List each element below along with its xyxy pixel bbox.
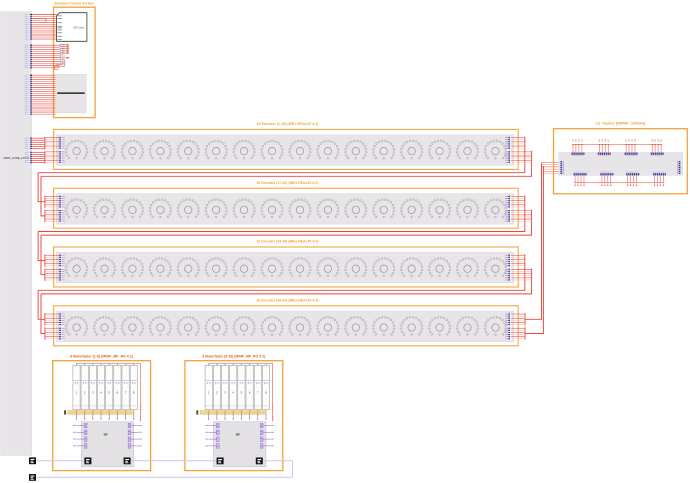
svg-text:8 Motorfader (9-16) (MIMF_MF_R: 8 Motorfader (9-16) (MIMF_MF_RG 4:2) bbox=[202, 354, 265, 358]
svg-text:Standard Control Surface: Standard Control Surface bbox=[54, 2, 94, 6]
svg-text:16 Encoder (33-48) (MB-LREAx25: 16 Encoder (33-48) (MB-LREAx25 4:3) bbox=[257, 240, 319, 244]
svg-text:MF: MF bbox=[236, 433, 240, 437]
svg-text:16 Encoder (49-64) (MB-LREAx25: 16 Encoder (49-64) (MB-LREAx25 4:4) bbox=[257, 298, 319, 302]
svg-text:MF: MF bbox=[104, 433, 108, 437]
svg-text:16 Encoder (17-32) (MB-LREAx25: 16 Encoder (17-32) (MB-LREAx25 4:2) bbox=[257, 181, 319, 185]
svg-text:8 Motorfader (1-8) (MIMF_MF_RG: 8 Motorfader (1-8) (MIMF_MF_RG 4:1) bbox=[70, 354, 133, 358]
svg-text:16 Encoder (1-16) (MB-LREAx25: 16 Encoder (1-16) (MB-LREAx25 4:1) bbox=[257, 122, 319, 126]
svg-text:12 Taster (MIMF_DIN34): 12 Taster (MIMF_DIN34) bbox=[595, 122, 645, 126]
svg-text:SD-Card: SD-Card bbox=[74, 25, 85, 29]
